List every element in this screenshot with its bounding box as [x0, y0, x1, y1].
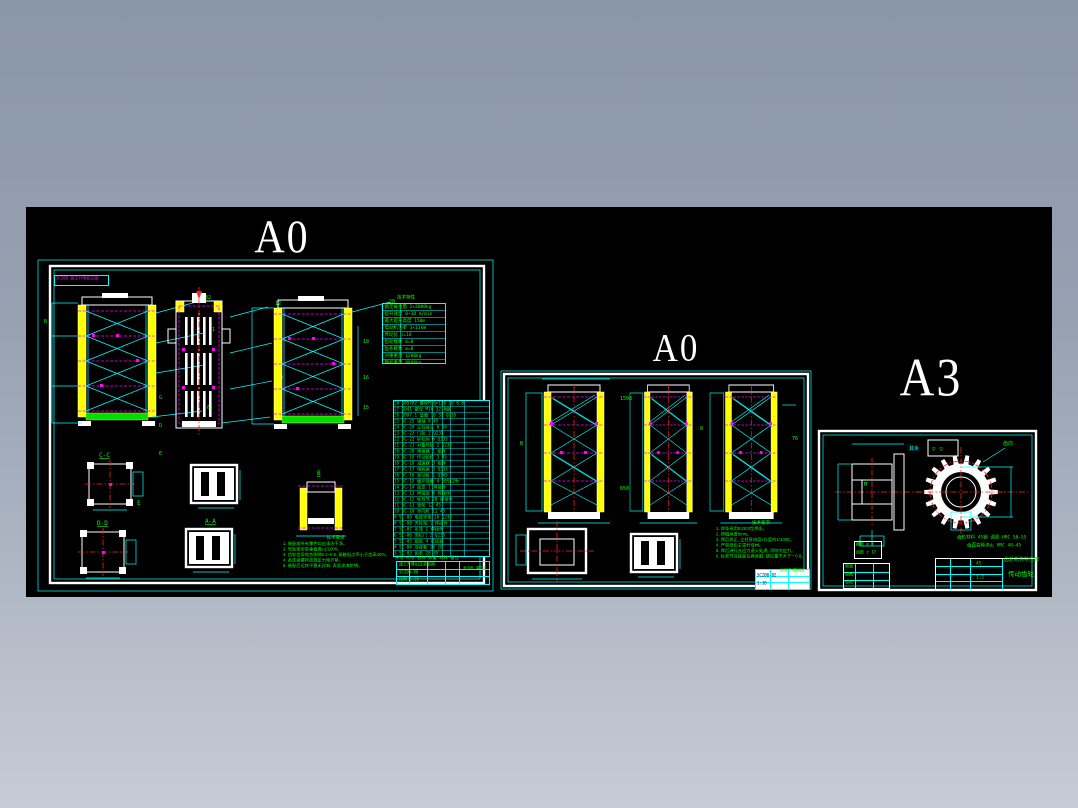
spec-row: 齿数 z 17 — [856, 550, 876, 555]
svg-text:其余: 其余 — [909, 445, 919, 452]
sheet3-signature-table: 制图 描图 审核 — [843, 563, 890, 589]
sheet1-section-mid — [191, 465, 240, 508]
gear-hub-section: M — [838, 444, 904, 546]
note-line: 5. 装配后运转平稳无异响, 表面涂漆防锈。 — [283, 563, 388, 569]
sheet1-mast-view-3 — [252, 296, 390, 429]
param-row: 齿条模数 m=8 — [383, 346, 445, 353]
svg-text:D-D: D-D — [97, 520, 108, 527]
svg-text:16: 16 — [363, 375, 369, 381]
sheet2-mast-view-1: B — [520, 379, 610, 523]
svg-text:18: 18 — [363, 339, 369, 345]
svg-text:B: B — [317, 470, 321, 477]
sheet1-view-b — [296, 482, 346, 536]
sheet1-title-block: 施工升降机总装配图 SC200-00 比例 1:25 共3张 第1张 — [396, 561, 490, 585]
svg-text:76: 76 — [792, 436, 798, 442]
svg-text:B: B — [520, 441, 523, 447]
param-row: 齿轮模数 m=8 — [383, 339, 445, 346]
param-row: 额定载重量 2×2000kg — [383, 304, 445, 311]
sheet3-title-material: 45 — [976, 561, 981, 566]
sheet2-title-block: 标准节焊接图 SC200-02 1:10 — [755, 569, 810, 590]
sig-row: 描图 — [845, 572, 853, 577]
sheet3-spec-box: 模数 m 8 齿数 z 17 — [854, 541, 882, 559]
sheet2-size-label: A0 — [616, 328, 736, 367]
svg-text:G: G — [159, 395, 162, 401]
sheet2-mast-view-2 — [630, 385, 697, 523]
sheet2-section-base — [516, 521, 594, 581]
sheet1-param-table: 额定载重量 2×2000kg提升速度 0~38 m/min最大提升高度 150m… — [382, 303, 446, 364]
sheet3-note-1: 齿轮材料 45钢·调质 HRC 50—55 — [957, 535, 1026, 540]
svg-text:M: M — [864, 482, 867, 488]
svg-text:E: E — [159, 451, 162, 457]
sheet2-title-name: 标准节焊接图 — [780, 568, 804, 573]
sheet2-notes-heading: 技术要求 — [716, 519, 806, 526]
sheet2-section-slots — [631, 534, 680, 577]
svg-text:C-C: C-C — [99, 452, 110, 459]
gear-callout: 齿向 — [1003, 440, 1013, 447]
svg-text:E: E — [137, 500, 141, 507]
param-row: 电动机功率 3×11kW — [383, 325, 445, 332]
sheet2-notes: 技术要求 1. 焊条采用E4303型焊条。2. 焊缝高度6mm。3. 焊后矫正,… — [716, 519, 806, 559]
sheet1-mast-view-2 — [168, 287, 272, 435]
svg-text:▽ ▽: ▽ ▽ — [932, 446, 943, 453]
sheet3-title-block: 45 1:2 齿轮机构特性表 传动齿轮 — [935, 558, 1037, 590]
param-row: 最大提升高度 150m — [383, 318, 445, 325]
gear-front-view — [916, 447, 1013, 537]
drawing-canvas[interactable]: A0 B 32 31 7 6 G — [26, 207, 1052, 597]
sheet3-note-2: 齿面高频淬火 HRC 40—45 — [967, 543, 1021, 548]
sheet1-corner-tag-box: SC200 施工升降机总图 — [54, 275, 109, 286]
sheet2-title-no: SC200-02 — [757, 573, 776, 578]
sheet1-a0: B 32 31 7 6 G D E 12 — [37, 259, 494, 592]
svg-text:8: 8 — [700, 426, 703, 432]
spec-row: 模数 m 8 — [856, 542, 874, 547]
sheet1-section-cc — [85, 460, 143, 510]
svg-text:1508: 1508 — [620, 396, 632, 402]
sheet2-title-scale: 1:10 — [757, 581, 767, 586]
sig-row: 审核 — [845, 580, 853, 585]
sheet1-param-table-title: 技术特性 — [397, 295, 415, 300]
sheet1-bom-table: 28 GB5782 螺栓M16×120 16 8.827 GB41 螺母 M16… — [393, 400, 490, 557]
param-row: 对重重量 1200kg — [383, 353, 445, 360]
svg-text:A-A: A-A — [205, 518, 216, 525]
sheet3-title-scale: 1:2 — [976, 575, 984, 580]
svg-text:D: D — [159, 423, 162, 429]
param-row: 整机重量 9800kg — [383, 360, 445, 364]
sheet1-notes-heading: 技术要求 — [283, 534, 388, 541]
sheet1-section-aa — [186, 529, 235, 572]
sheet1-title-scale: 比例 1:25 — [399, 577, 419, 582]
param-row: 提升速度 0~38 m/min — [383, 311, 445, 318]
sheet3-size-label: A3 — [871, 352, 991, 406]
sheet1-notes: 技术要求 1. 装配前所有零件均应清洗干净。2. 导轨架安装垂直度≤1/1000… — [283, 534, 336, 569]
sheet3-title-label: 齿轮机构特性表 — [1004, 557, 1039, 563]
svg-text:B: B — [44, 319, 47, 325]
sheet1-section-dd — [78, 528, 136, 578]
svg-text:650: 650 — [620, 486, 629, 492]
sheet3-title-name: 传动齿轮 — [1008, 571, 1034, 578]
sheet2-a0: B 1508 650 76 8 技术要求 1. 焊条采用E4303型焊条。2. — [500, 370, 812, 590]
sig-row: 制图 — [845, 564, 853, 569]
sheet1-title-sheetinfo: 共3张 第1张 — [463, 566, 486, 571]
sheet1-title-name: 施工升降机总装配图 — [399, 562, 435, 567]
sheet1-mast-view-1: B — [44, 293, 204, 426]
sheet1-title-no: SC200-00 — [399, 570, 418, 575]
svg-text:15: 15 — [363, 405, 369, 411]
sheet3-a3: M 其余 ▽ ▽ 齿向 — [817, 429, 1038, 592]
note-line: 6. 标准节对接面互换装配, 错位量不大于一0.8。 — [716, 554, 806, 560]
roughness-symbol-box: 其余 ▽ ▽ — [909, 440, 958, 456]
cad-preview-window: { "colors":{"bg_top":"#8a96aa","bg_botto… — [0, 0, 1078, 808]
sheet1-corner-tag: SC200 施工升降机总图 — [56, 276, 98, 281]
sheet1-size-label: A0 — [222, 214, 342, 261]
sheet2-mast-view-3 — [710, 385, 796, 523]
param-row: 传动比 i=16 — [383, 332, 445, 339]
